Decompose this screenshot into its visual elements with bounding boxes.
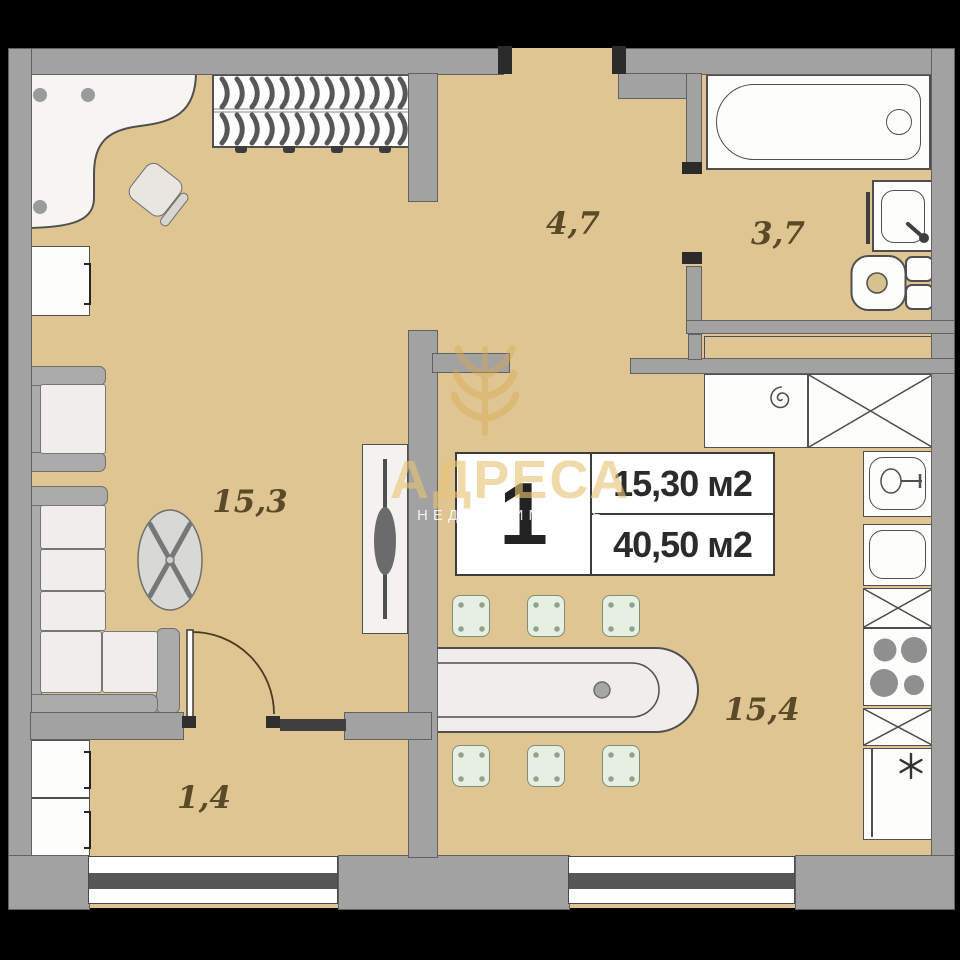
kitchen-sink — [863, 451, 933, 517]
cabinet-handle — [84, 751, 91, 789]
burner — [901, 637, 927, 663]
desk-leg — [33, 200, 47, 214]
kitchen-cabinet-top — [869, 530, 926, 579]
wall-entry-step — [618, 73, 688, 99]
room-label-hall-small: 1,4 — [152, 780, 256, 816]
kitchen-cabinet-x-2 — [863, 708, 933, 746]
stove — [863, 628, 933, 706]
room-label-kitchen: 15,4 — [710, 692, 814, 728]
watermark-brand: АДРЕСА — [360, 449, 660, 511]
bar-chair — [602, 745, 640, 787]
wall-living-hall — [408, 73, 438, 202]
kitchen-cabinet — [863, 524, 933, 586]
wardrobe-hook — [283, 146, 295, 153]
sofa-cushion — [40, 631, 102, 693]
toilet — [850, 254, 935, 312]
cross-icon — [809, 375, 932, 447]
bar-chair — [452, 745, 490, 787]
kitchen-cabinet-x-1 — [863, 588, 933, 628]
door-hinge-jamb — [182, 716, 196, 728]
wheat-logo-icon — [446, 343, 524, 439]
armchair — [22, 366, 106, 472]
window-right — [568, 856, 795, 904]
room-label-living: 15,3 — [198, 484, 302, 520]
wall-below-niche — [630, 358, 955, 374]
wall-bottom-3 — [795, 855, 955, 910]
room-label-bathroom: 3,7 — [733, 216, 823, 252]
door-strike-jamb — [266, 716, 280, 728]
window-left-frame — [89, 873, 337, 889]
bathtub-drain — [886, 109, 912, 135]
desk-leg — [81, 88, 95, 102]
bathroom-faucet-icon — [874, 182, 931, 250]
niche-shelf — [704, 336, 934, 360]
fridge-door-line — [871, 749, 873, 837]
cross-icon — [864, 709, 932, 745]
wardrobe-hook — [235, 146, 247, 153]
bathroom-jamb-top — [682, 162, 702, 174]
snowflake-icon — [898, 753, 924, 779]
entrance-jamb-right — [612, 46, 626, 74]
burner — [874, 639, 897, 662]
hangers — [214, 76, 408, 146]
stove-burners — [864, 629, 931, 704]
burner — [870, 669, 898, 697]
burner — [904, 675, 924, 695]
bathtub — [706, 74, 931, 170]
table-dot — [594, 682, 610, 698]
kitchen-faucet-icon — [864, 452, 931, 515]
door-leaf — [187, 630, 193, 718]
wall-hall-left — [30, 712, 184, 740]
sofa-cushion — [102, 631, 158, 693]
wall-top-right — [618, 48, 955, 75]
wall-niche-stub — [688, 334, 702, 360]
bar-chair — [602, 595, 640, 637]
interior-door — [178, 626, 286, 732]
coffee-table — [136, 508, 204, 612]
cross-icon — [864, 589, 932, 627]
fridge — [863, 748, 933, 840]
drawer-cabinet — [24, 246, 90, 316]
room-label-hall-entry: 4,7 — [528, 206, 618, 242]
bar-chair — [527, 745, 565, 787]
kitchen-counter — [704, 374, 808, 448]
armchair-armrest — [24, 452, 106, 472]
wall-bath-bottom — [686, 320, 955, 334]
bathroom-sink-bracket — [866, 192, 870, 244]
wardrobe — [212, 74, 410, 148]
door-threshold — [280, 719, 346, 731]
wall-bath-left-bottom — [686, 266, 702, 322]
cabinet-handle — [84, 263, 91, 305]
window-right-frame — [569, 873, 794, 889]
wall-top-left — [8, 48, 504, 75]
bathroom-jamb-bottom — [682, 252, 702, 264]
sofa-base — [24, 694, 158, 714]
bathroom-sink — [872, 180, 933, 252]
window-left — [88, 856, 338, 904]
armchair-cushion — [40, 384, 106, 454]
wall-bottom-2 — [338, 855, 570, 910]
hob-spiral-icon — [767, 385, 795, 413]
sofa-armrest-top — [24, 486, 108, 506]
sofa-cushion — [40, 591, 106, 631]
hall-cabinet-1 — [24, 740, 90, 798]
desk-leg — [33, 88, 47, 102]
wardrobe-hook — [331, 146, 343, 153]
wardrobe-hook — [379, 146, 391, 153]
sofa-cushion — [40, 505, 106, 549]
bar-chair — [452, 595, 490, 637]
watermark-tagline: НЕДВИЖИМОСТЬ — [372, 507, 652, 524]
wall-right — [931, 48, 955, 910]
entrance-jamb-left — [498, 46, 512, 74]
armchair-armrest — [24, 366, 106, 386]
corner-desk — [22, 70, 202, 232]
door-arc — [192, 632, 274, 714]
cabinet-handle — [84, 811, 91, 849]
hall-cabinet-2 — [24, 798, 90, 856]
wall-bottom-1 — [8, 855, 90, 910]
bar-chair — [527, 595, 565, 637]
floor-plan: 4,7 3,7 15,3 15,4 1,4 1 15,30 м2 40,50 м… — [0, 0, 960, 960]
wall-kitchen-divider — [408, 330, 438, 858]
bar-table — [432, 646, 700, 734]
sofa-armrest-right — [156, 628, 180, 714]
wall-hall-right — [344, 712, 432, 740]
wall-left — [8, 48, 32, 910]
wall-bath-left-top — [686, 73, 702, 168]
sofa-cushion — [40, 549, 106, 591]
kitchen-cabinet-x-top — [808, 374, 933, 448]
